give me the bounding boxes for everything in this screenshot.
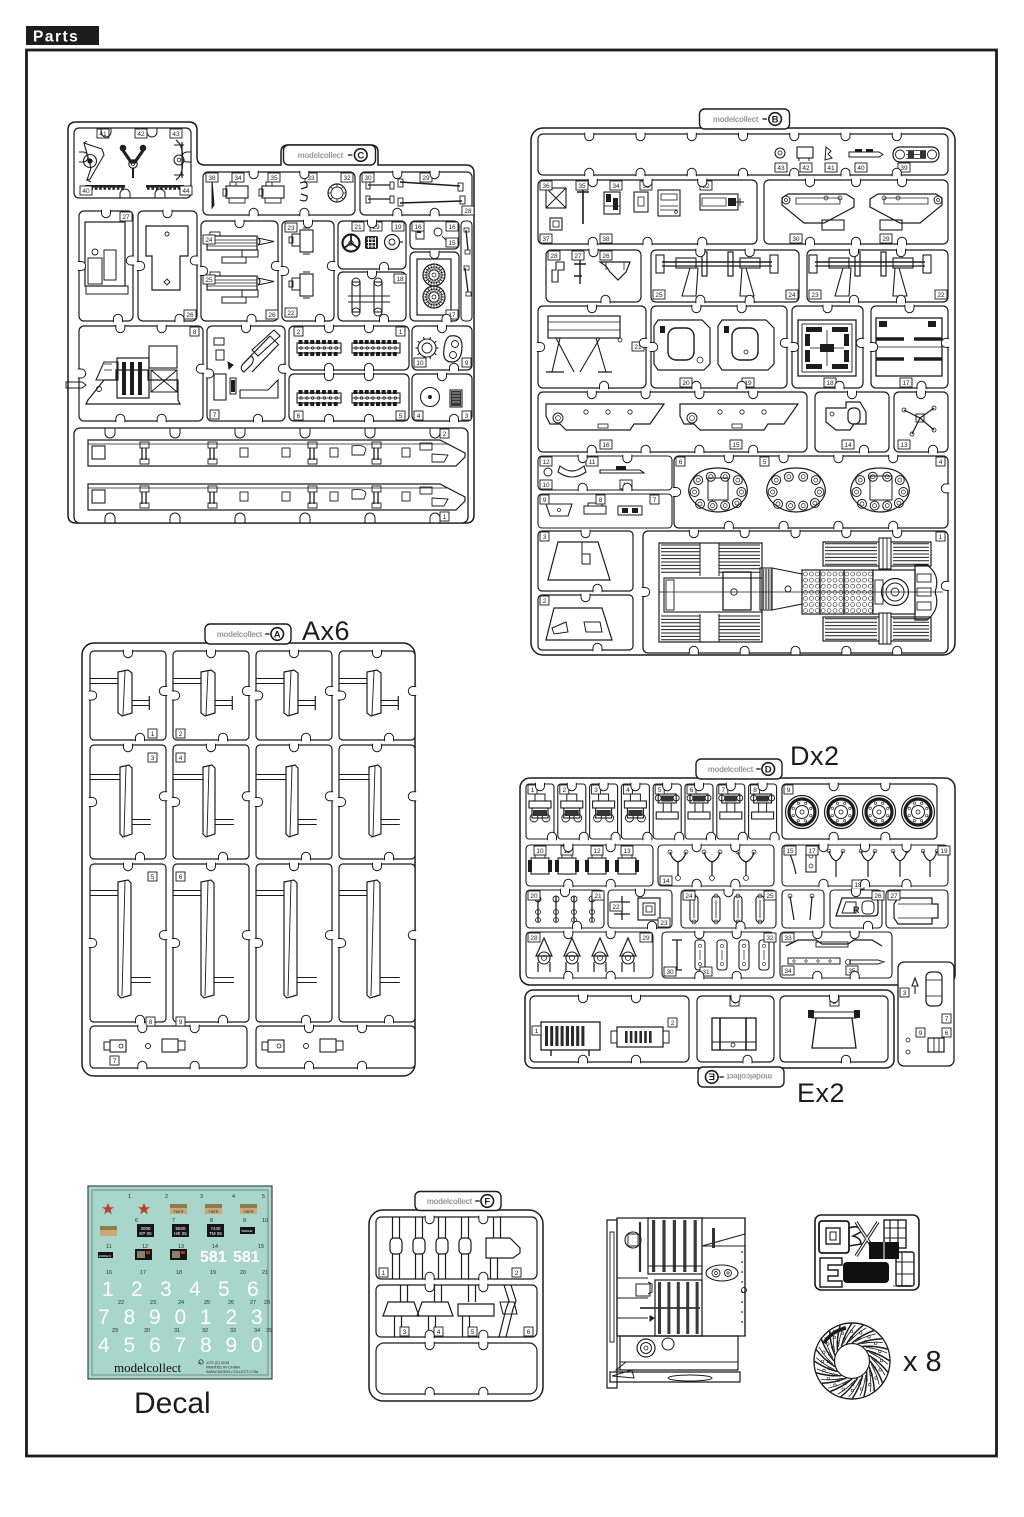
svg-text:1: 1 [531, 787, 535, 794]
svg-text:8: 8 [753, 787, 757, 794]
svg-text:2: 2 [165, 1194, 168, 1200]
svg-text:modelcollect: modelcollect [427, 1197, 473, 1206]
svg-text:4: 4 [179, 755, 183, 762]
svg-text:19: 19 [394, 224, 402, 231]
svg-text:8: 8 [200, 1334, 212, 1357]
svg-text:11: 11 [106, 1244, 112, 1250]
svg-text:5: 5 [658, 787, 662, 794]
svg-text:30: 30 [364, 175, 372, 182]
svg-text:32: 32 [766, 935, 774, 942]
svg-text:28: 28 [464, 208, 472, 215]
svg-text:6: 6 [247, 1278, 259, 1301]
svg-text:modelcollect: modelcollect [114, 1360, 182, 1375]
svg-text:22: 22 [287, 310, 295, 317]
svg-text:3: 3 [465, 413, 469, 420]
svg-text:4: 4 [939, 459, 943, 466]
svg-text:Ax6: Ax6 [302, 616, 350, 646]
svg-text:28: 28 [530, 935, 538, 942]
svg-text:x 8: x 8 [903, 1346, 942, 1378]
svg-text:1: 1 [399, 329, 403, 336]
svg-text:1/72 (C) 2016: 1/72 (C) 2016 [206, 1361, 229, 1365]
svg-text:FIATR: FIATR [174, 1210, 184, 1214]
svg-text:1: 1 [382, 1270, 386, 1277]
svg-text:0: 0 [251, 1334, 263, 1357]
svg-text:Parts: Parts [33, 29, 79, 46]
svg-text:44: 44 [182, 188, 190, 195]
svg-text:7: 7 [98, 1306, 110, 1329]
svg-text:3: 3 [903, 990, 907, 997]
svg-text:22: 22 [937, 292, 945, 299]
svg-text:1: 1 [128, 1194, 131, 1200]
svg-text:9: 9 [149, 1306, 161, 1329]
svg-text:16: 16 [106, 1270, 112, 1276]
svg-text:13: 13 [900, 442, 908, 449]
svg-text:8: 8 [149, 1019, 153, 1026]
svg-text:7: 7 [113, 1058, 117, 1065]
svg-text:33: 33 [784, 935, 792, 942]
svg-text:EP 05: EP 05 [139, 1231, 152, 1236]
svg-text:18: 18 [826, 380, 834, 387]
svg-text:9: 9 [919, 1030, 923, 1037]
svg-text:2: 2 [179, 731, 183, 738]
svg-text:27: 27 [574, 253, 582, 260]
svg-text:R: R [853, 905, 860, 915]
svg-text:A: A [274, 629, 281, 640]
svg-text:27: 27 [890, 893, 898, 900]
svg-text:20: 20 [240, 1270, 246, 1276]
svg-text:25: 25 [655, 292, 663, 299]
svg-text:42: 42 [137, 131, 145, 138]
svg-text:modelcollect: modelcollect [217, 630, 263, 639]
svg-text:5: 5 [763, 459, 767, 466]
svg-text:38: 38 [208, 175, 216, 182]
svg-text:3: 3 [251, 1306, 263, 1329]
svg-text:6: 6 [179, 874, 183, 881]
svg-text:200Rat D: 200Rat D [99, 1254, 113, 1258]
svg-text:24: 24 [205, 237, 213, 244]
svg-text:6: 6 [297, 413, 301, 420]
svg-text:25: 25 [766, 893, 774, 900]
svg-text:7: 7 [172, 1218, 175, 1224]
svg-text:24: 24 [685, 893, 693, 900]
svg-text:modelcollect: modelcollect [708, 765, 754, 774]
svg-text:12: 12 [542, 459, 550, 466]
svg-text:3: 3 [543, 534, 547, 541]
svg-text:4: 4 [626, 787, 630, 794]
svg-text:6: 6 [149, 1334, 161, 1357]
svg-text:2: 2 [297, 329, 301, 336]
svg-text:581: 581 [200, 1249, 227, 1266]
svg-text:18: 18 [176, 1270, 182, 1276]
svg-text:19: 19 [210, 1270, 216, 1276]
svg-text:0: 0 [175, 1306, 187, 1329]
svg-text:5: 5 [471, 1329, 475, 1336]
svg-text:16: 16 [448, 224, 456, 231]
svg-text:Ex2: Ex2 [797, 1078, 845, 1108]
svg-text:B: B [772, 114, 779, 125]
svg-text:19: 19 [940, 848, 948, 855]
svg-text:6: 6 [945, 1030, 949, 1037]
svg-text:2: 2 [443, 431, 447, 438]
svg-text:30: 30 [792, 236, 800, 243]
svg-text:4: 4 [189, 1278, 201, 1301]
svg-text:22: 22 [612, 904, 620, 911]
svg-text:3: 3 [160, 1278, 172, 1301]
svg-text:15: 15 [786, 848, 794, 855]
svg-text:2: 2 [226, 1306, 238, 1329]
svg-text:23: 23 [660, 920, 668, 927]
svg-text:9: 9 [226, 1334, 238, 1357]
svg-text:6: 6 [527, 1329, 531, 1336]
svg-text:1: 1 [443, 514, 447, 521]
svg-text:24: 24 [788, 292, 796, 299]
svg-text:1: 1 [200, 1306, 212, 1329]
svg-text:36: 36 [542, 183, 550, 190]
svg-text:1: 1 [151, 731, 155, 738]
svg-text:29: 29 [882, 236, 890, 243]
svg-text:34: 34 [612, 183, 620, 190]
svg-text:C: C [357, 150, 364, 161]
svg-text:10: 10 [536, 848, 544, 855]
svg-text:5: 5 [124, 1334, 136, 1357]
svg-text:14: 14 [662, 878, 670, 885]
svg-text:1: 1 [102, 1278, 114, 1301]
svg-text:4: 4 [417, 413, 421, 420]
svg-text:29: 29 [642, 935, 650, 942]
svg-text:26: 26 [874, 893, 882, 900]
svg-text:15: 15 [732, 442, 740, 449]
svg-text:41: 41 [827, 165, 835, 172]
svg-text:43: 43 [777, 165, 785, 172]
svg-text:5820HE: 5820HE [242, 1229, 253, 1233]
svg-text:12: 12 [593, 848, 601, 855]
svg-text:10: 10 [416, 360, 424, 367]
svg-text:8: 8 [193, 329, 197, 336]
svg-text:42: 42 [802, 165, 810, 172]
svg-text:38: 38 [602, 236, 610, 243]
svg-text:F: F [484, 1196, 490, 1207]
svg-text:1: 1 [535, 1028, 539, 1035]
svg-text:Dx2: Dx2 [790, 741, 840, 771]
svg-text:6: 6 [679, 459, 683, 466]
svg-text:16: 16 [414, 224, 422, 231]
svg-text:29: 29 [422, 175, 430, 182]
svg-text:26: 26 [602, 253, 610, 260]
svg-text:17: 17 [808, 848, 816, 855]
svg-text:TM 05: TM 05 [209, 1231, 222, 1236]
svg-text:35: 35 [266, 1328, 272, 1334]
svg-text:7: 7 [945, 1016, 949, 1023]
svg-text:FIATR: FIATR [244, 1210, 254, 1214]
svg-text:30: 30 [666, 969, 674, 976]
svg-text:9: 9 [179, 1019, 183, 1026]
svg-text:20: 20 [530, 893, 538, 900]
svg-text:15: 15 [448, 240, 456, 247]
svg-text:14: 14 [844, 442, 852, 449]
svg-text:2: 2 [671, 1020, 675, 1027]
svg-text:8: 8 [124, 1306, 136, 1329]
svg-text:3: 3 [200, 1194, 203, 1200]
svg-text:34: 34 [234, 175, 242, 182]
svg-text:23: 23 [811, 292, 819, 299]
svg-text:4: 4 [232, 1194, 235, 1200]
svg-text:21: 21 [262, 1270, 268, 1276]
svg-text:26: 26 [186, 312, 194, 319]
svg-text:D: D [765, 764, 772, 775]
svg-text:9: 9 [243, 1218, 246, 1224]
svg-text:7: 7 [213, 412, 217, 419]
svg-text:27: 27 [122, 214, 130, 221]
svg-text:7: 7 [721, 787, 725, 794]
svg-text:35: 35 [270, 175, 278, 182]
svg-text:8: 8 [599, 497, 603, 504]
svg-text:39: 39 [900, 165, 908, 172]
svg-text:17: 17 [902, 380, 910, 387]
svg-text:34: 34 [784, 968, 792, 975]
svg-text:5: 5 [218, 1278, 230, 1301]
svg-text:9: 9 [543, 497, 547, 504]
svg-text:5: 5 [262, 1194, 265, 1200]
svg-text:PAINTED IN CHINA: PAINTED IN CHINA [206, 1366, 240, 1370]
svg-text:5: 5 [399, 413, 403, 420]
svg-text:32: 32 [343, 175, 351, 182]
svg-text:13: 13 [623, 848, 631, 855]
svg-text:9: 9 [465, 360, 469, 367]
svg-text:581: 581 [233, 1249, 260, 1266]
svg-text:26: 26 [268, 312, 276, 319]
svg-text:HE 05: HE 05 [174, 1231, 187, 1236]
svg-text:40: 40 [82, 188, 90, 195]
svg-text:E: E [709, 1071, 715, 1082]
svg-text:6: 6 [135, 1218, 138, 1224]
svg-text:Decal: Decal [134, 1387, 211, 1420]
svg-text:7: 7 [653, 497, 657, 504]
svg-text:6: 6 [690, 787, 694, 794]
svg-text:16: 16 [602, 442, 610, 449]
svg-text:3: 3 [151, 755, 155, 762]
svg-text:9: 9 [787, 787, 791, 794]
svg-text:7: 7 [175, 1334, 187, 1357]
svg-text:2: 2 [131, 1278, 143, 1301]
svg-text:20: 20 [682, 380, 690, 387]
svg-text:3: 3 [594, 787, 598, 794]
svg-text:2: 2 [515, 1270, 519, 1277]
svg-text:2: 2 [543, 598, 547, 605]
svg-text:8: 8 [210, 1218, 213, 1224]
svg-text:2: 2 [562, 787, 566, 794]
svg-text:21: 21 [354, 224, 362, 231]
svg-text:11: 11 [589, 459, 596, 466]
svg-text:modelcollect: modelcollect [726, 1072, 772, 1081]
svg-text:10: 10 [262, 1218, 268, 1224]
svg-text:FIATR: FIATR [209, 1210, 219, 1214]
svg-text:40: 40 [857, 165, 865, 172]
svg-text:18: 18 [396, 276, 404, 283]
svg-text:WWW.MODELCOLLECT.COM: WWW.MODELCOLLECT.COM [206, 1370, 258, 1374]
svg-text:3: 3 [403, 1329, 407, 1336]
svg-text:28: 28 [264, 1300, 270, 1306]
svg-text:modelcollect: modelcollect [713, 115, 759, 124]
svg-text:35: 35 [578, 183, 586, 190]
svg-text:modelcollect: modelcollect [298, 151, 344, 160]
svg-text:21: 21 [594, 893, 602, 900]
svg-text:4: 4 [437, 1329, 441, 1336]
svg-text:43: 43 [172, 131, 180, 138]
svg-text:10: 10 [542, 482, 550, 489]
svg-text:modelcollect: modelcollect [893, 1284, 911, 1288]
svg-text:5: 5 [151, 874, 155, 881]
svg-text:28: 28 [550, 253, 558, 260]
svg-text:17: 17 [140, 1270, 146, 1276]
svg-text:1: 1 [939, 534, 943, 541]
svg-text:23: 23 [287, 225, 295, 232]
svg-text:29: 29 [112, 1328, 118, 1334]
svg-text:4: 4 [98, 1334, 110, 1357]
svg-text:25: 25 [205, 277, 213, 284]
svg-text:37: 37 [542, 236, 550, 243]
